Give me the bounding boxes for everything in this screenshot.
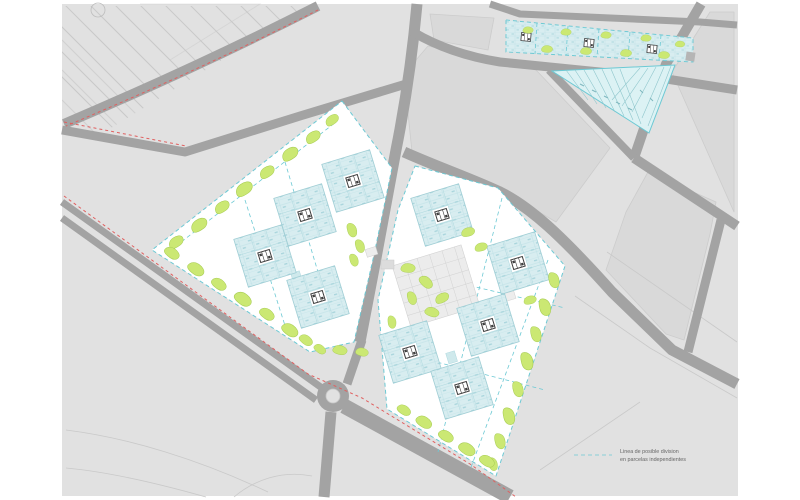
site-plan-canvas: Linea de posible division en parcelas in…: [0, 0, 800, 500]
strip-end-structure: [685, 51, 695, 61]
roundabout-island: [326, 389, 340, 403]
legend-line2: en parcelas independientes: [620, 457, 686, 463]
site-plan-drawing: Linea de posible division en parcelas in…: [0, 0, 800, 500]
legend-line1: Linea de posible division: [620, 449, 679, 455]
road-south: [324, 412, 331, 497]
